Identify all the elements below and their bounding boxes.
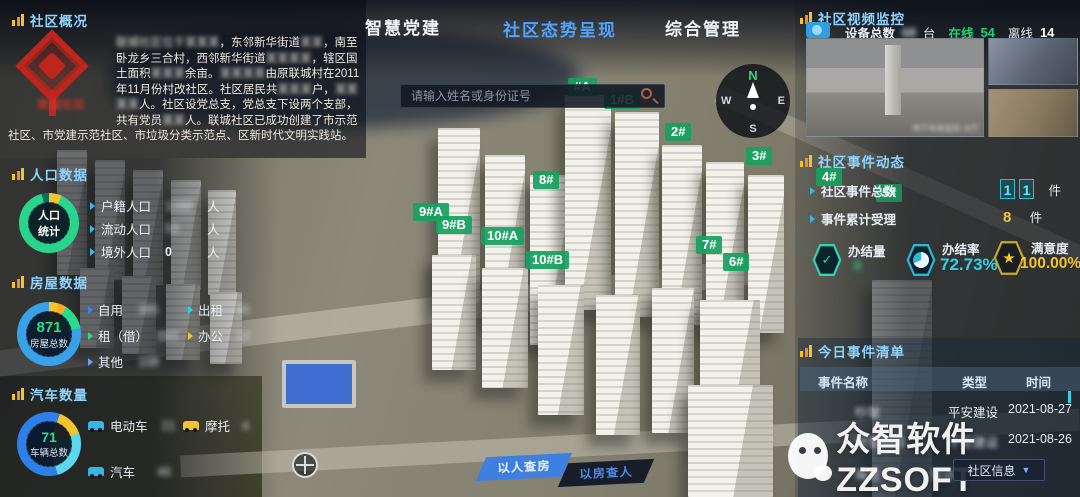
housing-row: 其他 108	[88, 352, 159, 371]
housing-row: 办公 12	[188, 326, 250, 345]
bar-chart-icon	[12, 276, 24, 288]
row-label: 租（借）	[98, 326, 148, 345]
compass-north: N	[748, 68, 757, 83]
triangle-bullet-icon	[88, 332, 93, 340]
housing-row: 出租 45	[188, 300, 250, 319]
tab-community-situation[interactable]: 社区态势呈现	[503, 16, 617, 41]
building	[688, 385, 773, 497]
bar-chart-icon	[800, 345, 812, 357]
row-value: 1268	[165, 199, 195, 213]
building-label[interactable]: 3#	[746, 147, 772, 165]
bar-chart-icon	[12, 168, 24, 180]
triangle-bullet-icon	[88, 358, 93, 366]
triangle-bullet-icon	[810, 215, 815, 223]
donut-center-top: 人口	[38, 207, 60, 223]
watermark-text: 众智软件ZZSOFT	[836, 412, 1080, 497]
building-label[interactable]: 2#	[665, 123, 691, 141]
today-title-label: 今日事件清单	[818, 341, 905, 361]
events-accepted-unit: 件	[1030, 211, 1043, 225]
compass[interactable]: N W E S	[716, 64, 790, 138]
housing-total: 871	[36, 319, 61, 336]
feed-caption: 地下车库监控-大厅	[912, 123, 979, 134]
overview-redacted: 某某某	[151, 68, 186, 80]
events-accepted-row: 事件累计受理	[810, 209, 896, 228]
vehicles-donut: 71 车辆总数	[17, 412, 81, 476]
triangle-bullet-icon	[188, 306, 193, 314]
row-value: 4	[242, 419, 249, 433]
events-total-value: 11 件	[1000, 179, 1061, 200]
row-value: 46	[157, 465, 171, 479]
bar-chart-icon	[12, 14, 24, 26]
row-value: 53	[165, 222, 195, 236]
search-icon[interactable]	[641, 88, 652, 99]
triangle-bullet-icon	[90, 202, 95, 210]
garage-pillar	[885, 45, 901, 115]
row-value: 12	[236, 329, 250, 343]
population-row: 户籍人口 1268 人	[90, 196, 220, 215]
bar-chart-icon	[800, 155, 812, 167]
row-label: 出租	[198, 300, 223, 319]
building-label[interactable]: 6#	[723, 253, 749, 271]
today-title: 今日事件清单	[800, 341, 905, 361]
locate-crosshair-icon[interactable]	[292, 452, 318, 478]
vehicle-row: 电动车 21	[88, 416, 175, 435]
triangle-bullet-icon	[90, 248, 95, 256]
compass-east: E	[778, 95, 785, 107]
vehicle-row: 摩托 4	[183, 416, 249, 435]
row-label: 境外人口	[101, 242, 151, 261]
camera-feed-3[interactable]	[988, 89, 1078, 137]
search-input[interactable]	[400, 84, 665, 108]
building	[596, 295, 640, 435]
digit-box: 1	[1000, 179, 1015, 199]
population-title-label: 人口数据	[30, 164, 88, 184]
overview-text: 联城社区 联城社区位于某某某，东邻新华街道某某，南至卧龙乡三合村，西邻新华街道某…	[8, 36, 360, 145]
car-icon	[88, 467, 104, 476]
row-unit: 人	[207, 219, 220, 238]
building	[482, 268, 528, 388]
row-value: 333	[157, 329, 178, 343]
compass-south: S	[749, 123, 756, 135]
population-row: 境外人口 0 人	[90, 242, 220, 261]
building-label[interactable]: 9#B	[436, 216, 472, 234]
row-unit: 人	[207, 196, 220, 215]
motorbike-icon	[183, 421, 199, 430]
population-title: 人口数据	[12, 164, 88, 184]
row-value: 21	[162, 419, 176, 433]
table-scrollbar[interactable]	[1068, 391, 1071, 403]
building-label[interactable]: 10#A	[481, 227, 524, 245]
row-value: 108	[138, 355, 159, 369]
logo-caption: 联城社区	[38, 98, 86, 114]
overview-seg: ，东邻新华街道	[220, 37, 301, 49]
tab-comprehensive-management[interactable]: 综合管理	[665, 15, 741, 40]
overview-redacted: 某某某	[277, 84, 312, 96]
building	[615, 112, 659, 317]
row-label: 摩托	[205, 416, 230, 435]
housing-row: 自用 385	[88, 300, 159, 319]
completion-rate-value: 72.73%	[940, 255, 998, 275]
blue-courtyard	[282, 360, 356, 408]
overview-title-label: 社区概况	[30, 10, 88, 30]
bar-chart-icon	[12, 388, 24, 400]
triangle-bullet-icon	[90, 225, 95, 233]
row-label: 其他	[98, 352, 123, 371]
building-label[interactable]: 10#B	[526, 251, 569, 269]
overview-redacted: 某某	[300, 37, 323, 49]
triangle-bullet-icon	[188, 332, 193, 340]
building	[538, 285, 584, 415]
completed-count-value: 8	[854, 258, 861, 273]
overview-redacted: 联城社区位于某某某	[116, 37, 220, 49]
row-label: 汽车	[110, 462, 135, 481]
building-label[interactable]: 4#	[816, 168, 842, 186]
overview-title: 社区概况	[12, 10, 88, 30]
row-value: 0	[165, 245, 195, 259]
button-label: 以房查人	[579, 460, 634, 486]
events-accepted-value: 8 件	[1003, 207, 1042, 227]
camera-feed-2[interactable]	[988, 38, 1078, 85]
overview-seg: 余亩。	[185, 68, 220, 80]
wechat-icon	[788, 433, 828, 479]
housing-total-label: 房屋总数	[30, 336, 68, 350]
row-unit: 人	[207, 242, 220, 261]
compass-dot-icon	[750, 104, 756, 110]
col-header-name: 事件名称	[818, 372, 868, 391]
row-value: 45	[236, 303, 250, 317]
row-label: 自用	[98, 300, 123, 319]
population-row: 流动人口 53 人	[90, 219, 220, 238]
ebike-icon	[88, 421, 104, 430]
community-info-select[interactable]: 社区信息 ▼	[953, 459, 1045, 481]
overview-seg: 户，	[312, 84, 335, 96]
dashboard-stage: #A 1#B 2# 3# 8# 9#A 9#B 10#A 10#B 7# 6# …	[0, 0, 1080, 497]
housing-donut: 871 房屋总数	[17, 302, 81, 366]
donut-center-bottom: 统计	[38, 223, 60, 239]
col-header-time: 时间	[1026, 372, 1051, 391]
select-value: 社区信息	[968, 462, 1016, 479]
housing-title-label: 房屋数据	[30, 272, 88, 292]
vehicles-total: 71	[41, 429, 57, 445]
accepted-number: 8	[1003, 209, 1011, 226]
events-accepted-label: 事件累计受理	[821, 209, 896, 228]
building	[432, 255, 476, 370]
row-label: 流动人口	[101, 219, 151, 238]
compass-west: W	[721, 95, 731, 107]
digit-box: 1	[1019, 179, 1034, 199]
vehicles-title: 汽车数量	[12, 384, 88, 404]
button-label: 以人查房	[497, 454, 552, 480]
camera-icon	[806, 22, 830, 38]
population-donut: 人口 统计	[19, 193, 79, 253]
tab-party-building[interactable]: 智慧党建	[365, 14, 441, 39]
row-label: 户籍人口	[101, 196, 151, 215]
satisfaction-value: 100.00%	[1020, 255, 1080, 273]
vehicles-total-label: 车辆总数	[30, 445, 68, 459]
building	[565, 95, 611, 310]
row-value: 385	[138, 303, 159, 317]
compass-arrow-icon	[747, 82, 759, 98]
vehicles-title-label: 汽车数量	[30, 384, 88, 404]
building-label[interactable]: 7#	[696, 236, 722, 254]
building-label[interactable]: 8#	[533, 171, 559, 189]
vehicle-row: 汽车 46	[88, 462, 171, 481]
row-label: 电动车	[110, 416, 148, 435]
camera-feed-main[interactable]: 地下车库监控-大厅	[806, 38, 984, 137]
events-total-unit: 件	[1048, 184, 1061, 198]
community-logo: 联城社区	[8, 38, 108, 120]
col-header-type: 类型	[962, 372, 987, 391]
row-label: 办公	[198, 326, 223, 345]
triangle-bullet-icon	[88, 306, 93, 314]
housing-row: 租（借） 333	[88, 326, 178, 345]
triangle-bullet-icon	[810, 187, 815, 195]
overview-redacted: 某某	[162, 115, 185, 127]
watermark: 众智软件ZZSOFT	[788, 412, 1080, 497]
overview-redacted: 某某某某	[220, 68, 266, 80]
overview-redacted: 某某某某	[266, 53, 312, 65]
search-person-by-house-button[interactable]: 以房查人	[558, 459, 654, 487]
housing-title: 房屋数据	[12, 272, 88, 292]
chevron-down-icon: ▼	[1022, 465, 1031, 475]
search-house-by-person-button[interactable]: 以人查房	[476, 453, 572, 481]
pie-icon	[913, 252, 929, 268]
